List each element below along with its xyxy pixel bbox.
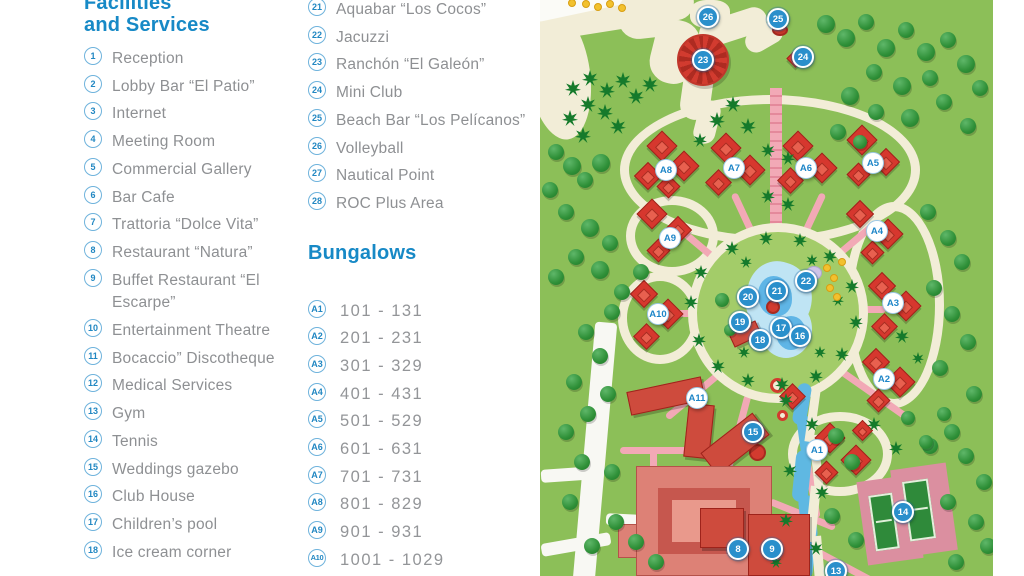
map-marker-25: 25 — [767, 8, 789, 30]
legend-item: 1Reception — [84, 45, 319, 73]
bush-tree — [926, 280, 942, 296]
legend-item-label: Beach Bar “Los Pelícanos” — [326, 107, 525, 135]
legend-item-number: A6 — [308, 438, 326, 456]
legend-item: A5501 - 529 — [308, 408, 543, 436]
bush-tree — [563, 157, 581, 175]
bush-tree — [604, 464, 620, 480]
map-marker-A2: A2 — [873, 368, 895, 390]
bush-tree — [602, 235, 618, 251]
legend-item-label: Tennis — [102, 428, 158, 456]
map-marker-20: 20 — [737, 286, 759, 308]
bush-tree — [828, 428, 844, 444]
legend-item-label: Medical Services — [102, 372, 232, 400]
legend-item-number: 28 — [308, 192, 326, 210]
legend-item-number: 17 — [84, 513, 102, 531]
bush-tree — [548, 269, 564, 285]
legend-item: A1101 - 131 — [308, 298, 543, 326]
palm-tree — [597, 104, 613, 120]
legend-item-label: 801 - 829 — [326, 491, 423, 519]
legend-item-label: Meeting Room — [102, 128, 215, 156]
bush-tree — [966, 386, 982, 402]
legend-item: A6601 - 631 — [308, 436, 543, 464]
bush-tree — [932, 360, 948, 376]
bush-tree — [844, 454, 860, 470]
bush-tree — [866, 64, 882, 80]
map-marker-22: 22 — [795, 270, 817, 292]
bush-tree — [592, 348, 608, 364]
legend-item: 18Ice cream corner — [84, 539, 319, 567]
legend-item: 13Gym — [84, 400, 319, 428]
legend-item: 12Medical Services — [84, 372, 319, 400]
swim-up-bar — [766, 300, 780, 314]
legend-item: 5Commercial Gallery — [84, 156, 319, 184]
legend-item-number: 15 — [84, 458, 102, 476]
legend-item-number: 9 — [84, 269, 102, 287]
bush-tree — [837, 29, 855, 47]
legend-item-label: Reception — [102, 45, 184, 73]
legend-item-label: Nautical Point — [326, 162, 434, 190]
legend-item: 9Buffet Restaurant “ElEscarpe” — [84, 267, 319, 317]
beach-umbrella — [838, 258, 846, 266]
tree-lined-avenue — [770, 88, 782, 230]
map-marker-24: 24 — [792, 46, 814, 68]
legend-item: A101001 - 1029 — [308, 547, 543, 575]
map-marker-21: 21 — [766, 280, 788, 302]
map-marker-A6: A6 — [795, 157, 817, 179]
legend-item-number: 18 — [84, 541, 102, 559]
legend-item: 6Bar Cafe — [84, 184, 319, 212]
legend-item: A8801 - 829 — [308, 491, 543, 519]
bush-tree — [817, 15, 835, 33]
map-marker-A4: A4 — [866, 220, 888, 242]
legend-item-number: 26 — [308, 137, 326, 155]
legend-item-number: 22 — [308, 26, 326, 44]
bush-tree — [592, 154, 610, 172]
legend-item-number: A7 — [308, 466, 326, 484]
bush-tree — [562, 494, 578, 510]
bush-tree — [976, 474, 992, 490]
resort-map: 262524232221201917181615891314A8A7A6A5A4… — [540, 0, 993, 576]
bush-tree — [633, 264, 649, 280]
palm-tree — [628, 88, 644, 104]
legend-item-label: Jacuzzi — [326, 24, 389, 52]
map-marker-A10: A10 — [647, 303, 669, 325]
legend-item-number: 11 — [84, 347, 102, 365]
map-marker-15: 15 — [742, 421, 764, 443]
facilities-list-2: 21Aquabar “Los Cocos”22Jacuzzi23Ranchón … — [308, 0, 543, 218]
bush-tree — [940, 494, 956, 510]
legend-item-number: 14 — [84, 430, 102, 448]
legend-item: 2Lobby Bar “El Patio” — [84, 73, 319, 101]
legend-item: 24Mini Club — [308, 79, 543, 107]
beach-umbrella — [582, 0, 590, 8]
beach-umbrella — [594, 3, 602, 11]
beach-umbrella — [833, 293, 841, 301]
bush-tree — [960, 118, 976, 134]
legend-item-number: 13 — [84, 402, 102, 420]
legend-item-number: A8 — [308, 493, 326, 511]
legend-item-label: 201 - 231 — [326, 325, 423, 353]
legend-item-number: 12 — [84, 374, 102, 392]
bush-tree — [954, 254, 970, 270]
legend-item-label: 601 - 631 — [326, 436, 423, 464]
legend-item-label: Internet — [102, 100, 166, 128]
bush-tree — [542, 182, 558, 198]
bush-tree — [577, 172, 593, 188]
map-marker-18: 18 — [749, 329, 771, 351]
palm-tree — [615, 72, 631, 88]
bush-tree — [877, 39, 895, 57]
bush-tree — [584, 538, 600, 554]
beach-umbrella — [606, 0, 614, 8]
bush-tree — [960, 334, 976, 350]
bush-tree — [968, 514, 984, 530]
legend-item-label: Aquabar “Los Cocos” — [326, 0, 486, 24]
facilities-header-line1: Facilities — [84, 0, 319, 14]
legend-item: 10Entertainment Theatre — [84, 317, 319, 345]
map-marker-A9: A9 — [659, 227, 681, 249]
legend-item-label: Buffet Restaurant “ElEscarpe” — [102, 267, 260, 317]
bungalows-header: Bungalows — [308, 242, 543, 268]
bush-tree — [648, 554, 664, 570]
legend-item-number: 3 — [84, 102, 102, 120]
map-marker-14: 14 — [892, 501, 914, 523]
palm-tree — [610, 118, 626, 134]
facilities-header: Facilities and Services — [84, 0, 319, 36]
bush-tree — [944, 424, 960, 440]
resort-map-page: Facilities and Services 1Reception2Lobby… — [0, 0, 1024, 576]
legend-item-label: 701 - 731 — [326, 464, 423, 492]
bush-tree — [608, 514, 624, 530]
legend-item: 22Jacuzzi — [308, 24, 543, 52]
bush-tree — [898, 22, 914, 38]
bush-tree — [958, 448, 974, 464]
legend-item-number: 16 — [84, 485, 102, 503]
legend-item-number: 23 — [308, 53, 326, 71]
legend-item-number: 7 — [84, 213, 102, 231]
legend-item-label: Lobby Bar “El Patio” — [102, 73, 255, 101]
legend-item: 14Tennis — [84, 428, 319, 456]
bush-tree — [901, 109, 919, 127]
legend-item-number: 21 — [308, 0, 326, 16]
bush-tree — [830, 124, 846, 140]
legend-item-label: 1001 - 1029 — [326, 547, 445, 575]
legend-item-number: 6 — [84, 186, 102, 204]
legend-item: 8Restaurant “Natura” — [84, 239, 319, 267]
legend-item: 26Volleyball — [308, 135, 543, 163]
map-marker-A5: A5 — [862, 152, 884, 174]
legend-facilities-column: Facilities and Services 1Reception2Lobby… — [84, 0, 319, 566]
legend-item: A7701 - 731 — [308, 464, 543, 492]
legend-item-number: A1 — [308, 300, 326, 318]
legend-item-label: Ice cream corner — [102, 539, 232, 567]
map-marker-9: 9 — [761, 538, 783, 560]
palm-tree — [599, 82, 615, 98]
beach-umbrella — [826, 284, 834, 292]
palm-tree — [642, 76, 658, 92]
legend-item-number: 8 — [84, 241, 102, 259]
bush-tree — [937, 407, 951, 421]
bush-tree — [604, 304, 620, 320]
legend-item-number: 4 — [84, 130, 102, 148]
map-marker-8: 8 — [727, 538, 749, 560]
legend-item-number: A2 — [308, 327, 326, 345]
legend-item-number: 25 — [308, 109, 326, 127]
legend-item-label: Restaurant “Natura” — [102, 239, 253, 267]
legend-item-label: Gym — [102, 400, 145, 428]
legend-item: 11Bocaccio” Discotheque — [84, 345, 319, 373]
bush-tree — [917, 43, 935, 61]
bush-tree — [614, 284, 630, 300]
bush-tree — [824, 508, 840, 524]
legend-item: 25Beach Bar “Los Pelícanos” — [308, 107, 543, 135]
legend-item: 3Internet — [84, 100, 319, 128]
legend-item: 7Trattoria “Dolce Vita” — [84, 211, 319, 239]
bush-tree — [922, 70, 938, 86]
map-marker-23: 23 — [692, 49, 714, 71]
legend-item-number: A4 — [308, 383, 326, 401]
legend-item-number: A3 — [308, 355, 326, 373]
bush-tree — [628, 534, 644, 550]
legend-item-label: Entertainment Theatre — [102, 317, 270, 345]
legend-item-label: Club House — [102, 483, 195, 511]
bush-tree — [940, 32, 956, 48]
bush-tree — [591, 261, 609, 279]
bush-tree — [848, 532, 864, 548]
bush-tree — [940, 230, 956, 246]
bush-tree — [980, 538, 993, 554]
bush-tree — [841, 87, 859, 105]
legend-item-label: Bar Cafe — [102, 184, 175, 212]
bush-tree — [919, 435, 933, 449]
legend-item-label: 501 - 529 — [326, 408, 423, 436]
bush-tree — [558, 204, 574, 220]
bush-tree — [568, 249, 584, 265]
legend-item-label: Mini Club — [326, 79, 402, 107]
legend-item-number: 2 — [84, 75, 102, 93]
beach-umbrella — [830, 274, 838, 282]
bush-tree — [893, 77, 911, 95]
bush-tree — [580, 406, 596, 422]
legend-item-number: A9 — [308, 521, 326, 539]
bush-tree — [957, 55, 975, 73]
bush-tree — [853, 135, 867, 149]
legend-item-number: A10 — [308, 549, 326, 567]
bush-tree — [920, 204, 936, 220]
legend-item: A2201 - 231 — [308, 325, 543, 353]
map-marker-A3: A3 — [882, 292, 904, 314]
legend-item: A4401 - 431 — [308, 381, 543, 409]
map-marker-16: 16 — [789, 325, 811, 347]
bush-tree — [868, 104, 884, 120]
legend-item-number: 24 — [308, 81, 326, 99]
legend-item-number: 27 — [308, 164, 326, 182]
map-marker-19: 19 — [729, 311, 751, 333]
bush-tree — [936, 94, 952, 110]
facilities-list: 1Reception2Lobby Bar “El Patio”3Internet… — [84, 45, 319, 566]
bungalows-list: A1101 - 131A2201 - 231A3301 - 329A4401 -… — [308, 298, 543, 575]
bush-tree — [972, 80, 988, 96]
legend-item: 17Children’s pool — [84, 511, 319, 539]
map-marker-A1: A1 — [806, 439, 828, 461]
fountain — [777, 410, 788, 421]
bush-tree — [581, 219, 599, 237]
bush-tree — [858, 14, 874, 30]
map-marker-13: 13 — [825, 560, 847, 576]
legend-item-label: 301 - 329 — [326, 353, 423, 381]
beach-umbrella — [618, 4, 626, 12]
legend-item-label: Trattoria “Dolce Vita” — [102, 211, 259, 239]
legend-item: 15Weddings gazebo — [84, 456, 319, 484]
beach-umbrella — [823, 264, 831, 272]
bush-tree — [600, 386, 616, 402]
legend-item-label: Bocaccio” Discotheque — [102, 345, 275, 373]
legend-item-label: ROC Plus Area — [326, 190, 444, 218]
legend-item-number: A5 — [308, 410, 326, 428]
legend-item: 21Aquabar “Los Cocos” — [308, 0, 543, 24]
legend-item: A3301 - 329 — [308, 353, 543, 381]
legend-item-label: Children’s pool — [102, 511, 217, 539]
bush-tree — [944, 306, 960, 322]
map-marker-A8: A8 — [655, 159, 677, 181]
bush-tree — [948, 554, 964, 570]
legend-item: 27Nautical Point — [308, 162, 543, 190]
legend-item-number: 10 — [84, 319, 102, 337]
legend-item: 16Club House — [84, 483, 319, 511]
legend-item-label: Ranchón “El Galeón” — [326, 51, 485, 79]
bush-tree — [715, 293, 729, 307]
map-marker-26: 26 — [697, 6, 719, 28]
legend-item: 28ROC Plus Area — [308, 190, 543, 218]
bush-tree — [558, 424, 574, 440]
legend-item-label: 401 - 431 — [326, 381, 423, 409]
legend-item-label: Volleyball — [326, 135, 404, 163]
legend-item-label: Weddings gazebo — [102, 456, 239, 484]
map-marker-A7: A7 — [723, 157, 745, 179]
legend-item-number: 5 — [84, 158, 102, 176]
map-marker-A11: A11 — [686, 387, 708, 409]
legend-services-column: 21Aquabar “Los Cocos”22Jacuzzi23Ranchón … — [308, 0, 543, 575]
legend-item: 4Meeting Room — [84, 128, 319, 156]
legend-item: 23Ranchón “El Galeón” — [308, 51, 543, 79]
bush-tree — [566, 374, 582, 390]
bush-tree — [901, 411, 915, 425]
legend-item-label-line2: Escarpe” — [112, 289, 260, 317]
legend-item-number: 1 — [84, 47, 102, 65]
stream-path — [811, 536, 825, 576]
bush-tree — [578, 324, 594, 340]
legend-item: A9901 - 931 — [308, 519, 543, 547]
legend-item-label: 101 - 131 — [326, 298, 423, 326]
bush-tree — [548, 144, 564, 160]
legend-item-label: 901 - 931 — [326, 519, 423, 547]
facilities-header-line2: and Services — [84, 14, 319, 36]
legend-item-label: Commercial Gallery — [102, 156, 252, 184]
bush-tree — [574, 454, 590, 470]
